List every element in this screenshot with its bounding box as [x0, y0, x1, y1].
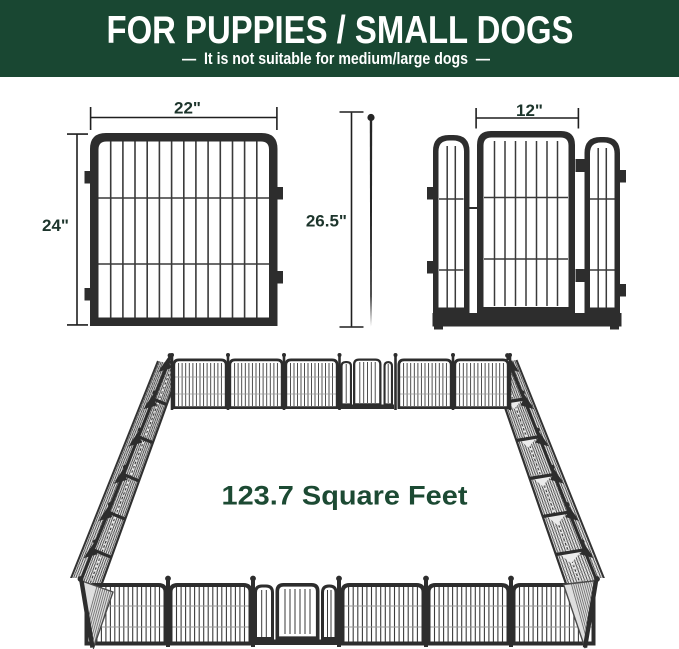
- svg-text:12": 12": [516, 101, 543, 120]
- svg-text:26.5": 26.5": [306, 212, 347, 231]
- svg-text:24": 24": [42, 216, 69, 235]
- svg-text:FOR PUPPIES / SMALL DOGS: FOR PUPPIES / SMALL DOGS: [107, 9, 574, 52]
- svg-text:22": 22": [174, 99, 201, 118]
- svg-text:123.7 Square Feet: 123.7 Square Feet: [222, 481, 468, 511]
- svg-text:— It is not suitable for medi: — It is not suitable for medium/large do…: [182, 50, 490, 68]
